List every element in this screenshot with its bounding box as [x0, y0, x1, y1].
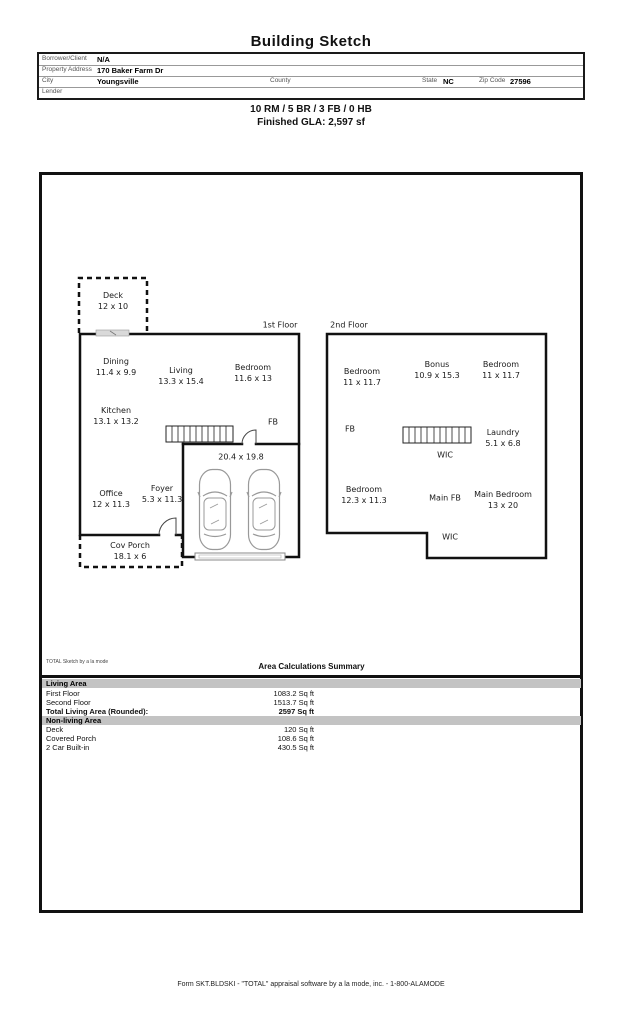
area-summary-title: Area Calculations Summary [42, 662, 581, 671]
room-label-bedroom-2f-right: Bedroom11 x 11.7 [482, 359, 520, 381]
room-label-garage-dims: 20.4 x 19.8 [218, 451, 263, 462]
row-2car-builtin-value: 430.5 Sq ft [42, 743, 314, 752]
row-first-floor-value: 1083.2 Sq ft [42, 689, 314, 698]
room-dims: 11.4 x 9.9 [96, 367, 136, 378]
row-covered-porch-value: 108.6 Sq ft [42, 734, 314, 743]
room-name: Living [158, 365, 203, 376]
room-name: Office [92, 488, 130, 499]
room-name: Bonus [414, 359, 459, 370]
room-name: Cov Porch [110, 540, 150, 551]
room-label-laundry: Laundry5.1 x 6.8 [485, 427, 520, 449]
first-floor-title: 1st Floor [263, 321, 298, 330]
room-dims: 11.6 x 13 [234, 373, 272, 384]
second-floor-title: 2nd Floor [330, 321, 368, 330]
area-summary-divider [42, 675, 581, 678]
car-icon [247, 470, 281, 550]
room-name: Bedroom [341, 484, 386, 495]
foyer-door-arc [159, 518, 176, 535]
room-dims: 12.3 x 11.3 [341, 495, 386, 506]
stairs-second-floor [403, 427, 471, 443]
room-dims: 5.1 x 6.8 [485, 438, 520, 449]
room-dims: 5.3 x 11.3 [142, 494, 182, 505]
form-footer: Form SKT.BLDSKI - "TOTAL" appraisal soft… [0, 981, 622, 988]
room-dims: 13 x 20 [474, 500, 532, 511]
room-name: Laundry [485, 427, 520, 438]
stairs-first-floor [166, 426, 233, 442]
room-label-wic-lower: WIC [442, 531, 458, 542]
room-dims: 10.9 x 15.3 [414, 370, 459, 381]
room-label-bedroom-2f-left: Bedroom11 x 11.7 [343, 366, 381, 388]
room-label-bedroom-1f: Bedroom11.6 x 13 [234, 362, 272, 384]
room-label-bedroom-2f-lower: Bedroom12.3 x 11.3 [341, 484, 386, 506]
room-name: Bedroom [482, 359, 520, 370]
building-sketch-page: { "title": "Building Sketch", "form": { … [0, 0, 622, 1024]
room-label-dining: Dining11.4 x 9.9 [96, 356, 136, 378]
room-dims: 11 x 11.7 [343, 377, 381, 388]
room-label-main-fb: Main FB [429, 492, 461, 503]
living-area-header: Living Area [42, 679, 581, 688]
room-name: Kitchen [93, 405, 138, 416]
living-area-header-label: Living Area [46, 679, 87, 688]
car-icon [198, 470, 232, 550]
room-name: Foyer [142, 483, 182, 494]
room-name: Main Bedroom [474, 489, 532, 500]
room-name: Deck [98, 290, 128, 301]
room-name: Bedroom [343, 366, 381, 377]
nonliving-area-header-label: Non-living Area [46, 716, 101, 725]
room-label-office: Office12 x 11.3 [92, 488, 130, 510]
room-name: Bedroom [234, 362, 272, 373]
room-dims: 12 x 11.3 [92, 499, 130, 510]
room-label-deck: Deck12 x 10 [98, 290, 128, 312]
room-label-fb-2f: FB [345, 423, 355, 434]
room-label-main-bedroom: Main Bedroom13 x 20 [474, 489, 532, 511]
fb-door-arc [242, 430, 256, 444]
room-dims: 18.1 x 6 [110, 551, 150, 562]
row-second-floor-value: 1513.7 Sq ft [42, 698, 314, 707]
room-dims: 13.3 x 15.4 [158, 376, 203, 387]
room-label-fb-1f: FB [268, 416, 278, 427]
room-dims: 12 x 10 [98, 301, 128, 312]
room-label-bonus: Bonus10.9 x 15.3 [414, 359, 459, 381]
room-label-foyer: Foyer5.3 x 11.3 [142, 483, 182, 505]
room-label-living: Living13.3 x 15.4 [158, 365, 203, 387]
room-dims: 13.1 x 13.2 [93, 416, 138, 427]
room-name: Dining [96, 356, 136, 367]
room-dims: 11 x 11.7 [482, 370, 520, 381]
nonliving-area-header: Non-living Area [42, 716, 581, 725]
floorplan-drawing [0, 0, 622, 1024]
garage-door [195, 553, 285, 560]
row-total-living-value: 2597 Sq ft [42, 707, 314, 716]
row-deck-value: 120 Sq ft [42, 725, 314, 734]
room-label-wic-upper: WIC [437, 449, 453, 460]
room-label-kitchen: Kitchen13.1 x 13.2 [93, 405, 138, 427]
room-label-cov-porch: Cov Porch18.1 x 6 [110, 540, 150, 562]
